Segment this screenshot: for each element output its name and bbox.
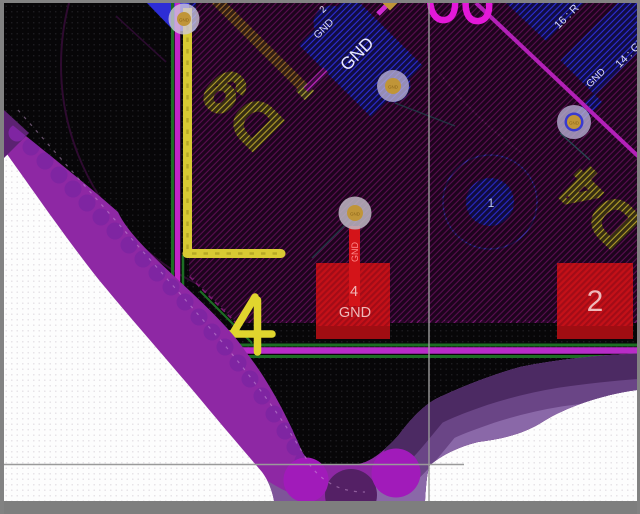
svg-text:2: 2: [587, 285, 604, 318]
svg-text:GND: GND: [350, 242, 360, 263]
svg-text:1: 1: [488, 196, 495, 210]
svg-text:4: 4: [350, 284, 358, 300]
svg-text:GND: GND: [388, 85, 399, 90]
svg-text:GND: GND: [569, 121, 580, 126]
svg-text:GND: GND: [339, 305, 371, 321]
svg-text:GND: GND: [350, 212, 361, 217]
svg-text:GND: GND: [179, 18, 190, 23]
